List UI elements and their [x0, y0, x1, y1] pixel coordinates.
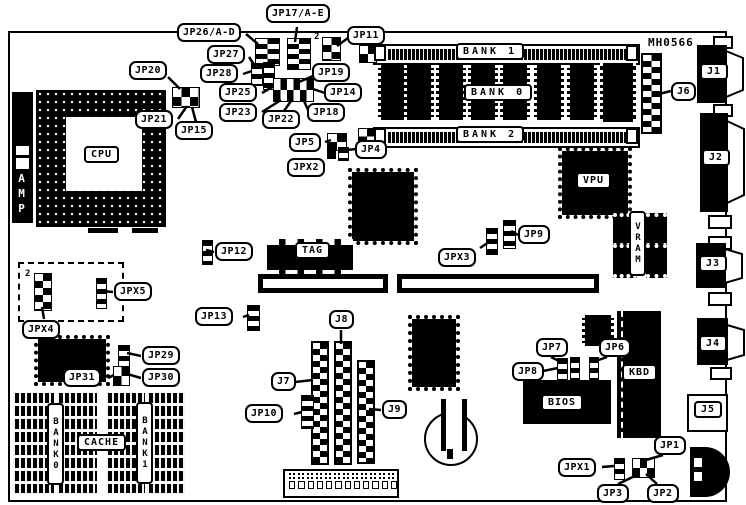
bank1-label: BANK 1 [456, 43, 524, 60]
callout-jpx3: JPX3 [438, 248, 476, 267]
callout-jp13: JP13 [195, 307, 233, 326]
callout-jp3: JP3 [597, 484, 629, 503]
tag-label: TAG [295, 242, 330, 259]
callout-jp20: JP20 [129, 61, 167, 80]
callout-j8: J8 [329, 310, 354, 329]
callout-jp12: JP12 [215, 242, 253, 261]
callout-j7: J7 [271, 372, 296, 391]
motherboard-diagram: AMP CPU VPU VRAM [0, 0, 746, 505]
callout-jp27: JP27 [207, 45, 245, 64]
callout-jp2: JP2 [647, 484, 679, 503]
vpu-label: VPU [576, 172, 611, 189]
callout-jp18: JP18 [307, 103, 345, 122]
callout-jp10: JP10 [245, 404, 283, 423]
callout-jpx4: JPX4 [22, 320, 60, 339]
callout-jp5: JP5 [289, 133, 321, 152]
bank2-label: BANK 2 [456, 126, 524, 143]
callout-jp11: JP11 [347, 26, 385, 45]
kbd-label: KBD [622, 364, 657, 381]
callout-jp7: JP7 [536, 338, 568, 357]
pin2-marker-jp11: 2 [314, 32, 319, 42]
cache-label: CACHE [77, 434, 126, 451]
cache-bank1-label: BANK1 [136, 402, 153, 484]
callout-jpx2: JPX2 [287, 158, 325, 177]
callout-jpx1: JPX1 [558, 458, 596, 477]
j5-label: J5 [694, 401, 722, 418]
callout-jp8: JP8 [512, 362, 544, 381]
j1-label: J1 [700, 63, 728, 80]
j3-label: J3 [699, 255, 727, 272]
bank0-label: BANK 0 [464, 84, 532, 101]
callout-jp4: JP4 [355, 140, 387, 159]
callout-jp17: JP17/A-E [266, 4, 330, 23]
callout-jp28: JP28 [200, 64, 238, 83]
callout-jp25: JP25 [219, 83, 257, 102]
callout-jp9: JP9 [518, 225, 550, 244]
callout-jp21: JP21 [135, 110, 173, 129]
callout-jp23: JP23 [219, 103, 257, 122]
pin2-marker-jpx4: 2 [25, 269, 30, 279]
callout-jp1: JP1 [654, 436, 686, 455]
callout-jp19: JP19 [312, 63, 350, 82]
vram-label: VRAM [629, 211, 646, 276]
callout-j6: J6 [671, 82, 696, 101]
callout-jp15: JP15 [175, 121, 213, 140]
callout-jp29: JP29 [142, 346, 180, 365]
j4-label: J4 [699, 335, 727, 352]
part-number: MH0566 [648, 36, 694, 49]
bios-label: BIOS [541, 394, 583, 411]
j2-label: J2 [702, 149, 730, 166]
callout-jpx5: JPX5 [114, 282, 152, 301]
callout-jp31: JP31 [63, 368, 101, 387]
cache-bank0-label: BANK0 [47, 403, 64, 485]
callout-jp22: JP22 [262, 110, 300, 129]
callout-jp14: JP14 [324, 83, 362, 102]
callout-jp30: JP30 [142, 368, 180, 387]
callout-jp26: JP26/A-D [177, 23, 241, 42]
callout-jp6: JP6 [599, 338, 631, 357]
cpu-label: CPU [84, 146, 119, 163]
callout-j9: J9 [382, 400, 407, 419]
